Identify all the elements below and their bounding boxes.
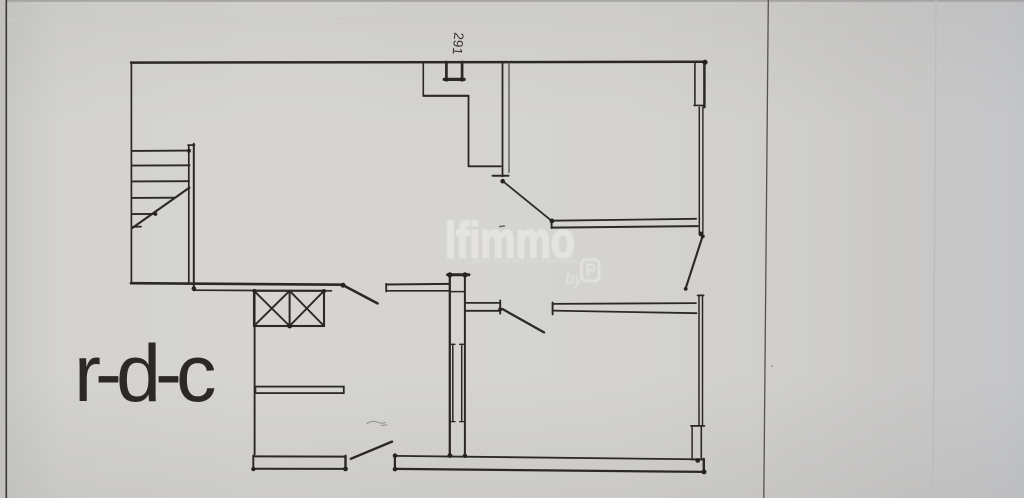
svg-text:votre bulle est notre passion: votre bulle est notre passion: [472, 258, 577, 265]
svg-text:291: 291: [450, 32, 467, 56]
svg-text:r-d-c: r-d-c: [74, 329, 215, 419]
